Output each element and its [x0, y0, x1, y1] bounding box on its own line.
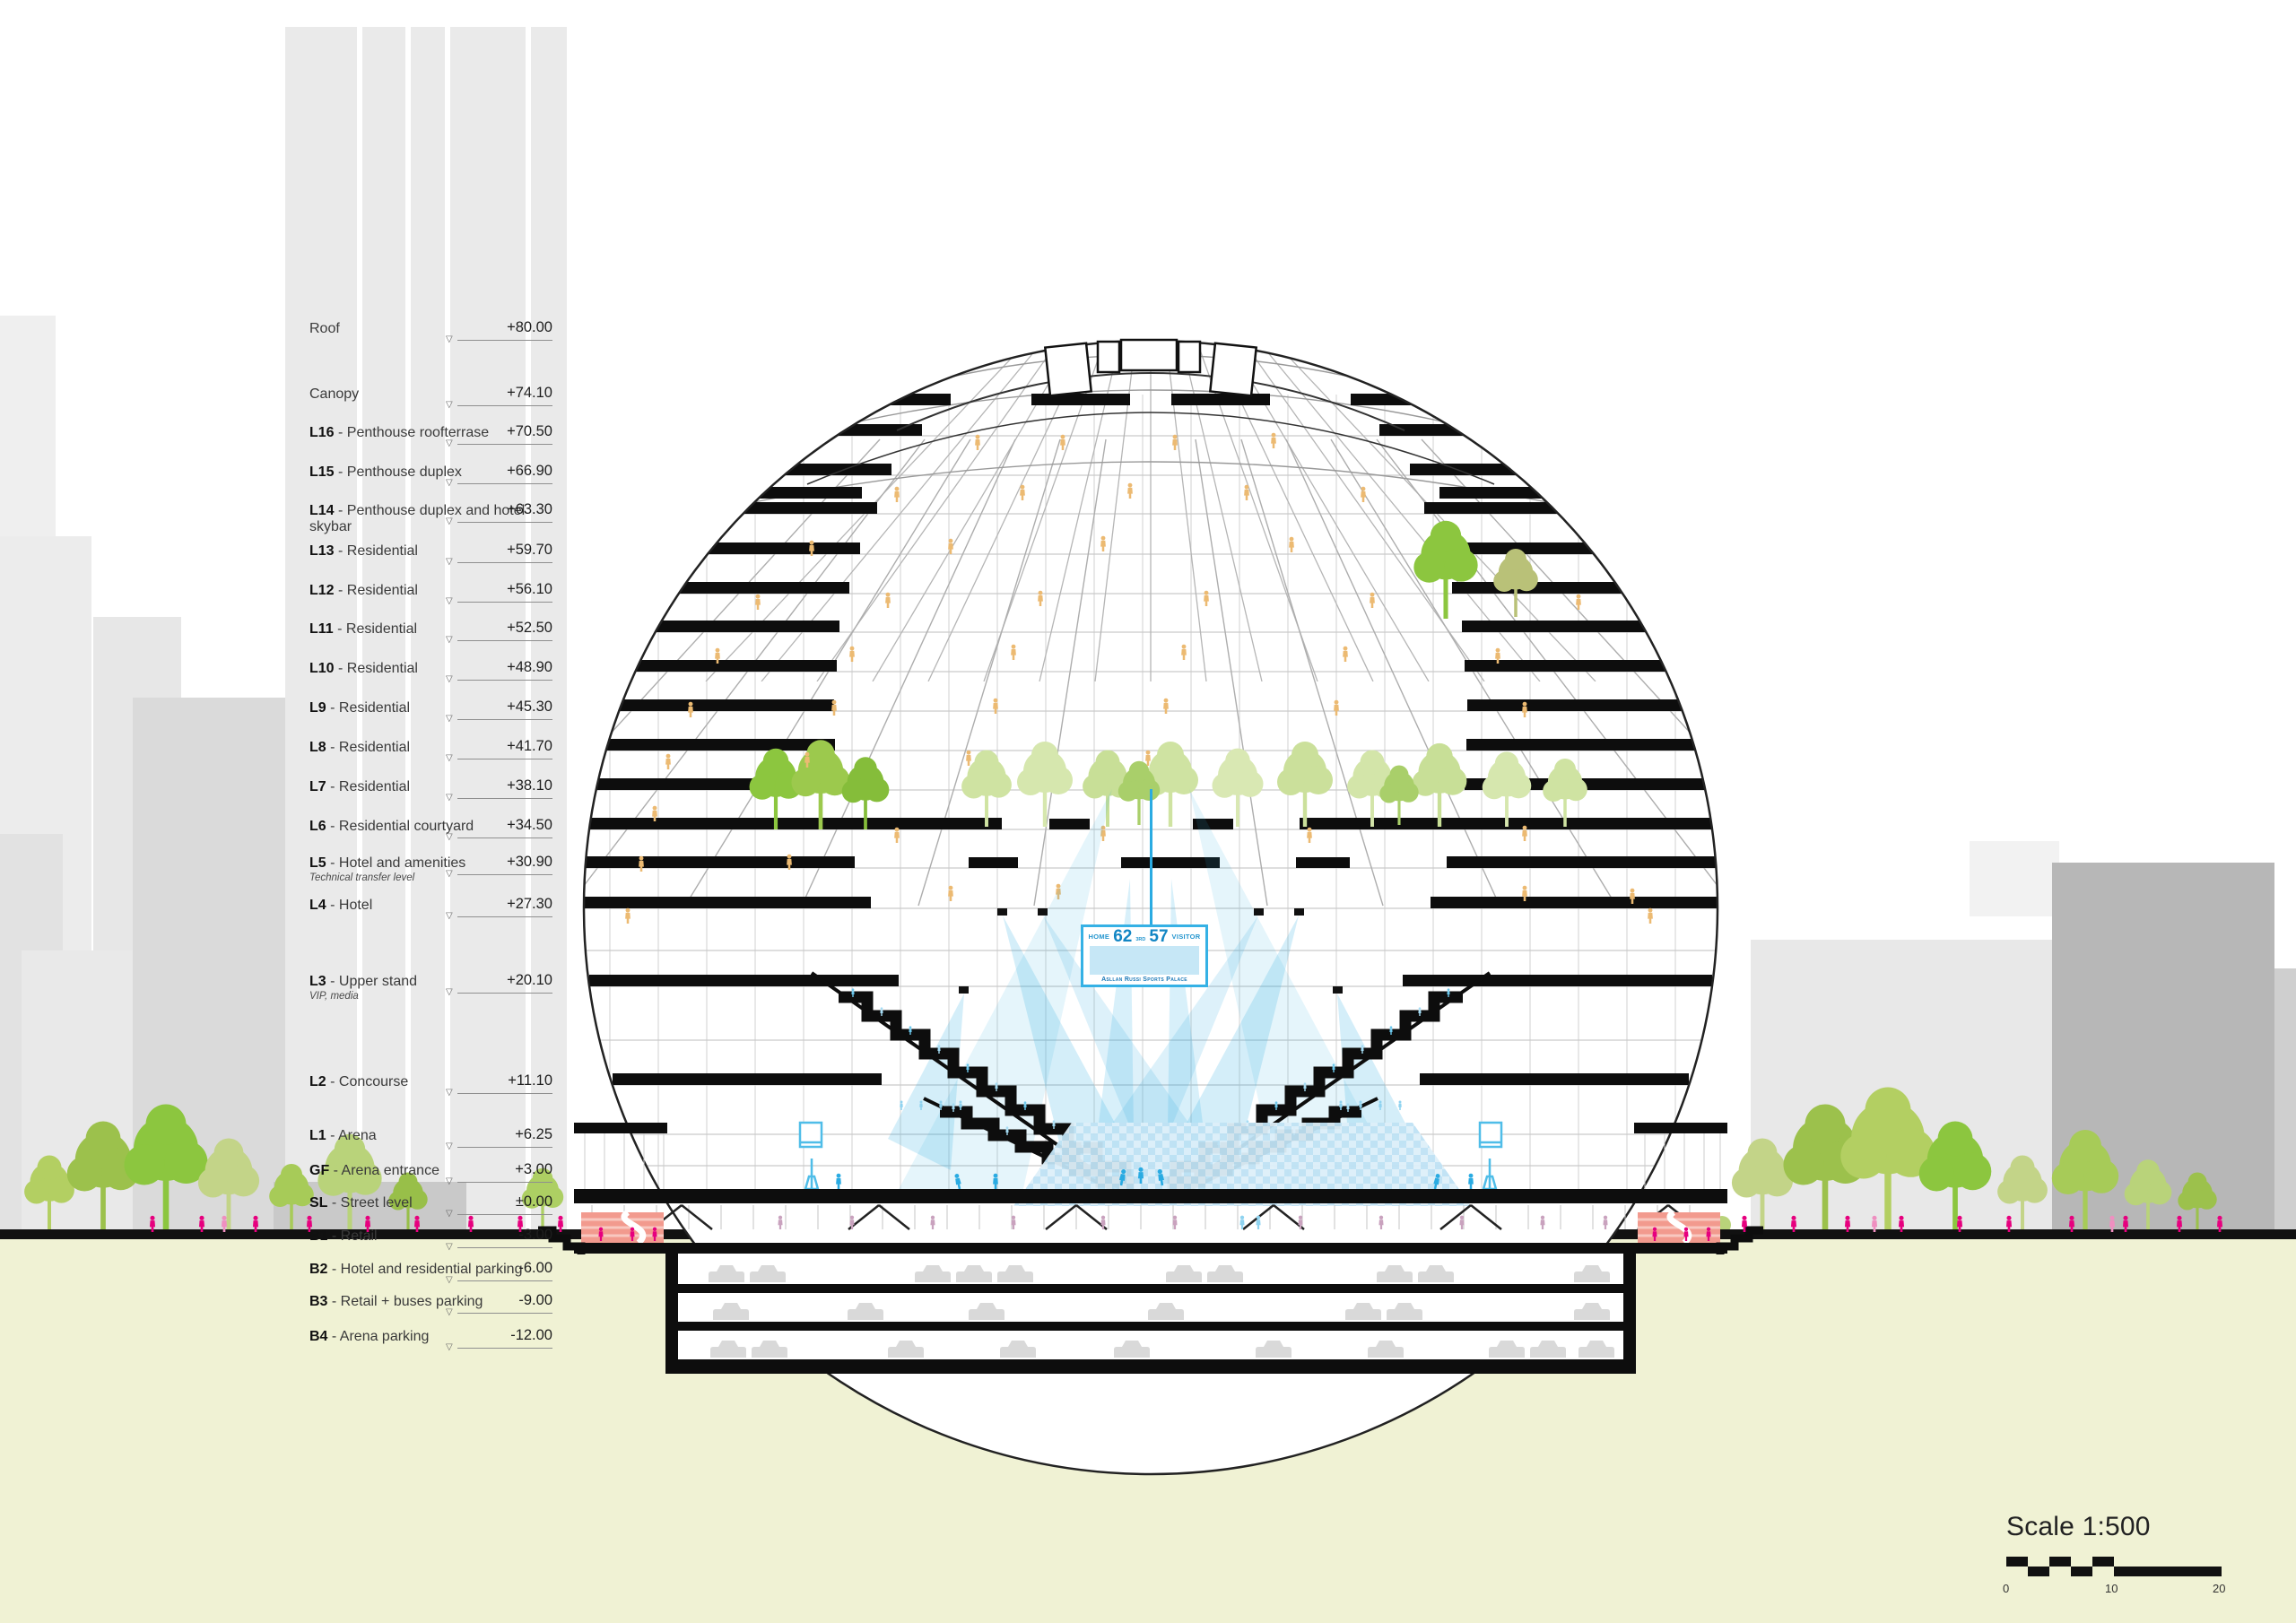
- level-row-canopy: Canopy▽+74.10: [309, 386, 556, 403]
- level-row-l4: L4 - Hotel▽+27.30: [309, 898, 556, 914]
- level-code: L12: [309, 583, 335, 598]
- elevation-value: +34.50: [507, 817, 552, 833]
- level-code: GF: [309, 1163, 329, 1178]
- elevation-value: +74.10: [507, 385, 552, 401]
- level-row-l16: L16 - Penthouse roofterrase▽+70.50: [309, 425, 556, 441]
- elevation-value: +59.70: [507, 542, 552, 558]
- elevation-marker-icon: ▽: [446, 1088, 453, 1098]
- level-code: L5: [309, 855, 326, 871]
- elevation-marker-icon: ▽: [446, 438, 453, 449]
- elevation-marker-icon: ▽: [446, 400, 453, 411]
- level-row-l1: L1 - Arena▽+6.25: [309, 1128, 556, 1144]
- level-row-b3: B3 - Retail + buses parking▽-9.00: [309, 1294, 556, 1310]
- elevation-value: +66.90: [507, 463, 552, 479]
- scoreboard: HOME 62 3RD 57 VISITOR Asllan Russi Spor…: [1081, 924, 1208, 987]
- level-name: - Residential: [326, 779, 410, 794]
- level-row-l12: L12 - Residential▽+56.10: [309, 583, 556, 599]
- elevation-value: +80.00: [507, 319, 552, 335]
- level-row-l13: L13 - Residential▽+59.70: [309, 543, 556, 560]
- level-name: Roof: [309, 321, 340, 336]
- elevation-value: -3.00: [518, 1227, 552, 1243]
- elevation-value: +11.10: [508, 1072, 552, 1089]
- level-row-l9: L9 - Residential▽+45.30: [309, 700, 556, 716]
- elevation-value: +27.30: [507, 896, 552, 912]
- elevation-value: ±0.00: [516, 1193, 552, 1210]
- level-name: - Residential courtyard: [326, 819, 474, 834]
- scale-bar: Scale 1:500 0 10 20: [2006, 1512, 2239, 1598]
- elevation-marker-icon: ▽: [446, 478, 453, 489]
- elevation-value: -12.00: [510, 1327, 552, 1343]
- elevation-marker-icon: ▽: [446, 832, 453, 843]
- level-name: - Arena: [326, 1128, 377, 1143]
- level-name: - Hotel and amenities: [326, 855, 466, 871]
- level-name: - Penthouse duplex: [335, 464, 462, 480]
- level-code: SL: [309, 1195, 327, 1211]
- elevation-marker-icon: ▽: [446, 714, 453, 725]
- elevation-value: +41.70: [507, 738, 552, 754]
- level-name: - Arena parking: [327, 1329, 429, 1344]
- level-name: - Residential: [326, 740, 410, 755]
- level-row-l5: L5 - Hotel and amenitiesTechnical transf…: [309, 855, 556, 885]
- elevation-marker-icon: ▽: [446, 557, 453, 568]
- level-name: - Residential: [326, 700, 410, 716]
- level-row-gf: GF - Arena entrance▽+3.00: [309, 1163, 556, 1179]
- elevation-value: +48.90: [507, 659, 552, 675]
- elevation-marker-icon: ▽: [446, 635, 453, 646]
- elevation-marker-icon: ▽: [446, 1176, 453, 1187]
- scale-tick-10: 10: [2105, 1582, 2118, 1595]
- elevation-value: +63.30: [507, 501, 552, 517]
- level-code: B3: [309, 1294, 327, 1309]
- level-row-l8: L8 - Residential▽+41.70: [309, 740, 556, 756]
- scale-tick-0: 0: [2003, 1582, 2009, 1595]
- elevation-marker-icon: ▽: [446, 596, 453, 607]
- elevation-marker-icon: ▽: [446, 793, 453, 803]
- level-name: - Hotel: [326, 898, 373, 913]
- level-code: L9: [309, 700, 326, 716]
- scoreboard-home-label: HOME: [1089, 933, 1110, 941]
- elevation-marker-icon: ▽: [446, 516, 453, 527]
- elevation-value: +56.10: [507, 581, 552, 597]
- level-name: - Residential: [334, 621, 417, 637]
- level-name: - Street level: [327, 1195, 412, 1211]
- basement: [665, 1243, 1636, 1374]
- level-name: - Retail: [327, 1228, 377, 1244]
- scoreboard-screen: [1090, 946, 1199, 975]
- elevation-value: -6.00: [518, 1260, 552, 1276]
- elevation-marker-icon: ▽: [446, 1307, 453, 1318]
- scoreboard-home-score: 62: [1113, 928, 1132, 945]
- level-row-l2: L2 - Concourse▽+11.10: [309, 1074, 556, 1090]
- elevation-marker-icon: ▽: [446, 1209, 453, 1219]
- level-name: - Residential: [335, 543, 418, 559]
- architectural-section-page: { "colors": { "accent_blue": "#29abe2", …: [0, 0, 2296, 1623]
- elevation-marker-icon: ▽: [446, 869, 453, 880]
- level-row-l14: L14 - Penthouse duplex and hotel skybar▽…: [309, 503, 556, 536]
- scale-tick-20: 20: [2213, 1582, 2225, 1595]
- level-row-b1: B1 - Retail▽-3.00: [309, 1228, 556, 1245]
- elevation-marker-icon: ▽: [446, 753, 453, 764]
- elevation-marker-icon: ▽: [446, 1275, 453, 1286]
- elevation-marker-icon: ▽: [446, 911, 453, 922]
- level-code: L14: [309, 503, 335, 518]
- elevation-value: +70.50: [507, 423, 552, 439]
- level-row-roof: Roof▽+80.00: [309, 321, 556, 337]
- elevation-marker-icon: ▽: [446, 674, 453, 685]
- level-code: L15: [309, 464, 335, 480]
- level-row-b4: B4 - Arena parking▽-12.00: [309, 1329, 556, 1345]
- section-drawing: [0, 0, 2296, 1623]
- level-row-l3: L3 - Upper standVIP, media▽+20.10: [309, 974, 556, 1003]
- elevation-marker-icon: ▽: [446, 334, 453, 345]
- elevation-value: +3.00: [515, 1161, 552, 1177]
- elevation-value: +45.30: [507, 699, 552, 715]
- scoreboard-period: 3RD: [1135, 937, 1145, 942]
- level-code: L3: [309, 974, 326, 989]
- scoreboard-visitor-score: 57: [1149, 928, 1168, 945]
- scoreboard-venue: Asllan Russi Sports Palace: [1083, 976, 1205, 985]
- level-code: L6: [309, 819, 326, 834]
- elevation-value: +6.25: [515, 1126, 552, 1142]
- level-row-l11: L11 - Residential▽+52.50: [309, 621, 556, 638]
- scale-label: Scale 1:500: [2006, 1512, 2239, 1542]
- level-code: L16: [309, 425, 335, 440]
- elevation-marker-icon: ▽: [446, 987, 453, 998]
- level-code: L11: [309, 621, 334, 637]
- level-name: Canopy: [309, 386, 359, 402]
- elevation-marker-icon: ▽: [446, 1242, 453, 1253]
- elevation-value: +38.10: [507, 777, 552, 794]
- level-code: L4: [309, 898, 326, 913]
- level-code: B2: [309, 1262, 327, 1277]
- elevation-marker-icon: ▽: [446, 1342, 453, 1353]
- scoreboard-suspension: [1150, 789, 1152, 925]
- scale-bar-graphic: [2006, 1557, 2239, 1576]
- elevation-marker-icon: ▽: [446, 1141, 453, 1152]
- level-row-b2: B2 - Hotel and residential parking▽-6.00: [309, 1262, 556, 1278]
- elevation-value: +20.10: [507, 972, 552, 988]
- level-name: - Concourse: [326, 1074, 409, 1089]
- elevation-value: -9.00: [518, 1292, 552, 1308]
- level-code: L8: [309, 740, 326, 755]
- level-name: - Residential: [335, 661, 418, 676]
- level-row-l7: L7 - Residential▽+38.10: [309, 779, 556, 795]
- level-code: L1: [309, 1128, 326, 1143]
- level-code: L2: [309, 1074, 326, 1089]
- level-code: L13: [309, 543, 335, 559]
- level-code: B4: [309, 1329, 327, 1344]
- elevation-value: +30.90: [507, 854, 552, 870]
- level-row-l10: L10 - Residential▽+48.90: [309, 661, 556, 677]
- elevation-value: +52.50: [507, 620, 552, 636]
- level-name: - Residential: [335, 583, 418, 598]
- level-code: L10: [309, 661, 335, 676]
- level-row-l6: L6 - Residential courtyard▽+34.50: [309, 819, 556, 835]
- level-name: - Arena entrance: [329, 1163, 439, 1178]
- scoreboard-visitor-label: VISITOR: [1172, 933, 1201, 941]
- level-code: B1: [309, 1228, 327, 1244]
- level-code: L7: [309, 779, 326, 794]
- level-row-sl: SL - Street level▽±0.00: [309, 1195, 556, 1211]
- level-row-l15: L15 - Penthouse duplex▽+66.90: [309, 464, 556, 481]
- level-name: - Upper stand: [326, 974, 417, 989]
